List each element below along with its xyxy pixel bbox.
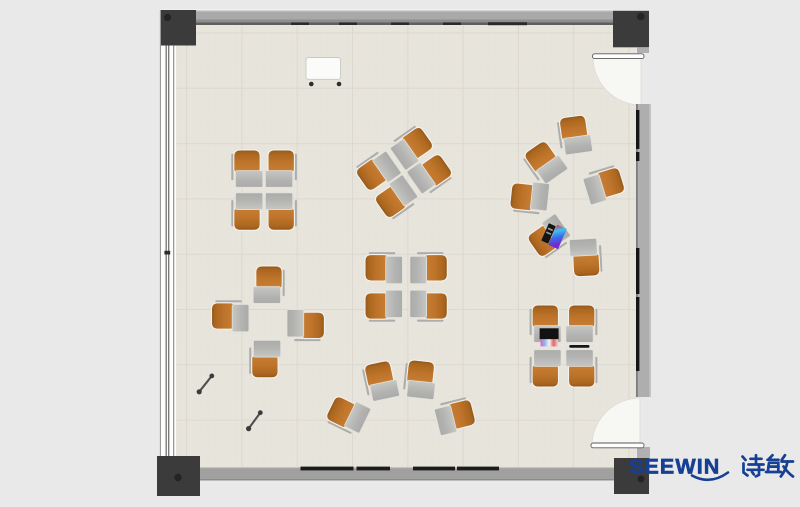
svg-text:SEEWIN: SEEWIN xyxy=(629,455,720,479)
